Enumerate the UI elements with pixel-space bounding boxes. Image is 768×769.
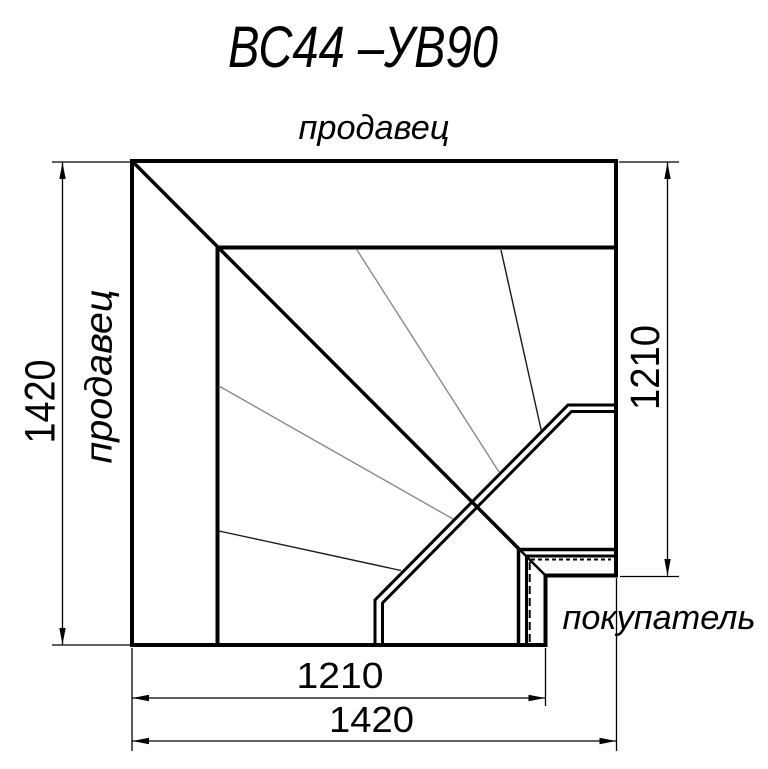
svg-text:ВС44 –УВ90: ВС44 –УВ90 xyxy=(228,15,498,80)
svg-text:1210: 1210 xyxy=(622,325,668,410)
svg-text:1420: 1420 xyxy=(17,360,65,444)
svg-text:продавец: продавец xyxy=(299,109,450,147)
svg-text:1210: 1210 xyxy=(297,655,384,696)
svg-text:1420: 1420 xyxy=(329,699,414,740)
svg-text:покупатель: покупатель xyxy=(563,599,756,637)
svg-text:продавец: продавец xyxy=(79,290,121,464)
